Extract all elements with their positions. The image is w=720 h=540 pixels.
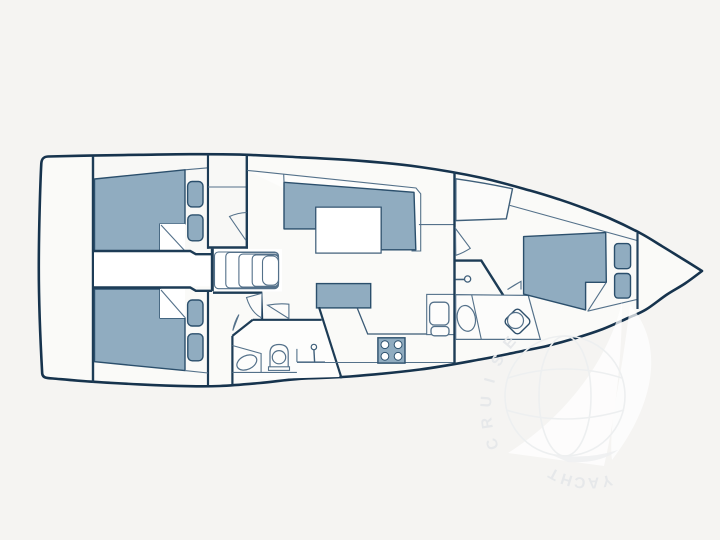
svg-text:C: C <box>573 473 586 491</box>
svg-text:U: U <box>478 396 496 408</box>
svg-text:A: A <box>587 474 599 492</box>
